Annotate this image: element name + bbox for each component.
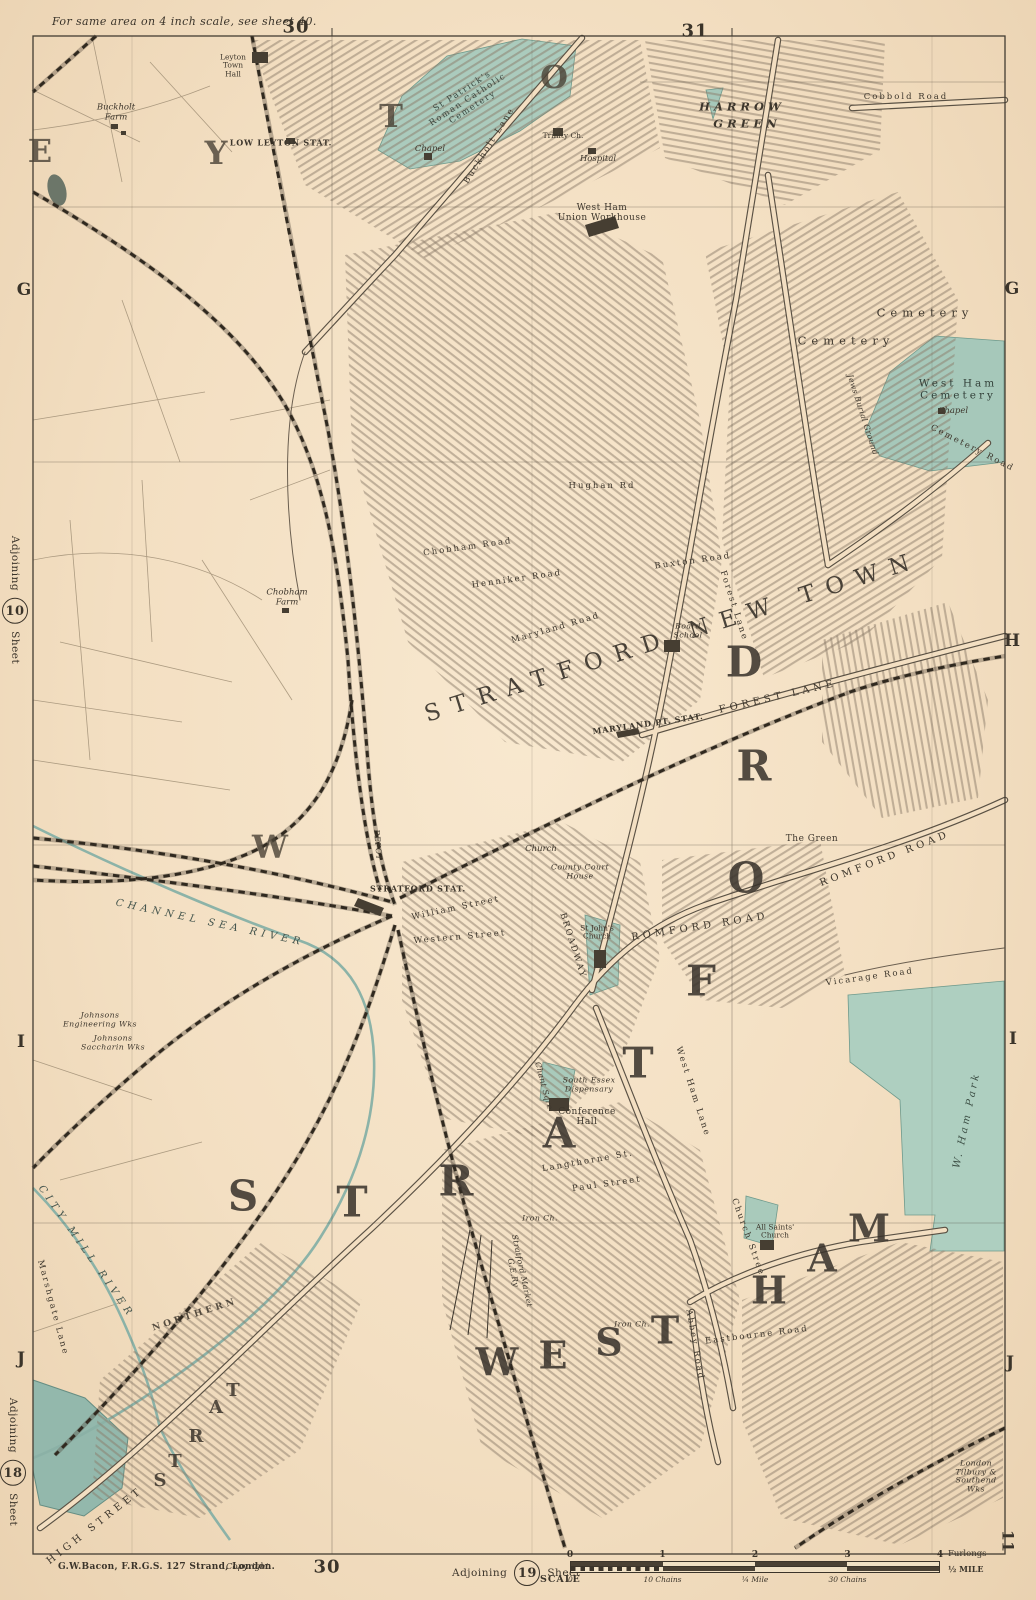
sheet-word: Sheet: [7, 1493, 19, 1526]
adjoining-word: Adjoining: [452, 1567, 507, 1579]
adjoining-sheet-18: Adjoining 18 Sheet: [0, 1398, 26, 1526]
sheet-word: Sheet: [9, 631, 21, 664]
antique-map-page: { "colors": { "paper": "#f3dfc2", "ink":…: [0, 0, 1036, 1600]
grid-letter: J: [17, 1349, 25, 1369]
grid-letter: G: [1005, 279, 1020, 299]
urban-texture: [92, 40, 1003, 1545]
scale-tick: 2: [752, 1550, 758, 1560]
scale-zero: 0: [568, 1575, 573, 1584]
grid-letter: J: [1006, 1353, 1014, 1373]
copyright-note: Copyright: [226, 1562, 269, 1572]
grid-letter: H: [1004, 631, 1020, 651]
scale-tick: 0: [567, 1550, 573, 1560]
scale-tick: 1: [659, 1550, 665, 1560]
scale-bar-graphic: [570, 1561, 940, 1573]
scale-chain-label: ¼ Mile: [742, 1575, 769, 1584]
adjoining-sheet-number: 10: [2, 598, 28, 624]
scale-furlong-ticks: 01234: [570, 1550, 940, 1561]
scale-bar: 01234 10 Chains¼ Mile30 Chains Furlongs …: [570, 1550, 940, 1584]
scale-tick: 4: [937, 1550, 943, 1560]
top-margin-note: For same area on 4 inch scale, see sheet…: [52, 15, 317, 28]
scale-chain-label: 10 Chains: [643, 1575, 681, 1584]
corner-sheet-number: 11: [999, 1530, 1018, 1552]
map-canvas: [0, 0, 1036, 1600]
sheet-number: 31: [681, 21, 708, 42]
sheet-number: 30: [313, 1557, 340, 1578]
grid-letter: I: [1009, 1029, 1017, 1049]
grid-letter: G: [17, 280, 32, 300]
grid-letter: I: [17, 1032, 25, 1052]
adjoining-word: Adjoining: [7, 1398, 19, 1453]
scale-chain-labels: 10 Chains¼ Mile30 Chains: [570, 1573, 940, 1584]
scale-mile-unit: ½ MILE: [948, 1564, 1008, 1574]
adjoining-sheet-10: Adjoining 10 Sheet: [2, 536, 28, 664]
scale-tick: 3: [844, 1550, 850, 1560]
sheet-number: 30: [282, 17, 309, 38]
adjoining-sheet-number: 18: [0, 1460, 26, 1486]
field-lines: [33, 36, 330, 1332]
scale-chain-label: 30 Chains: [828, 1575, 866, 1584]
adjoining-word: Adjoining: [9, 536, 21, 591]
adjoining-sheet-number: 19: [514, 1560, 540, 1586]
